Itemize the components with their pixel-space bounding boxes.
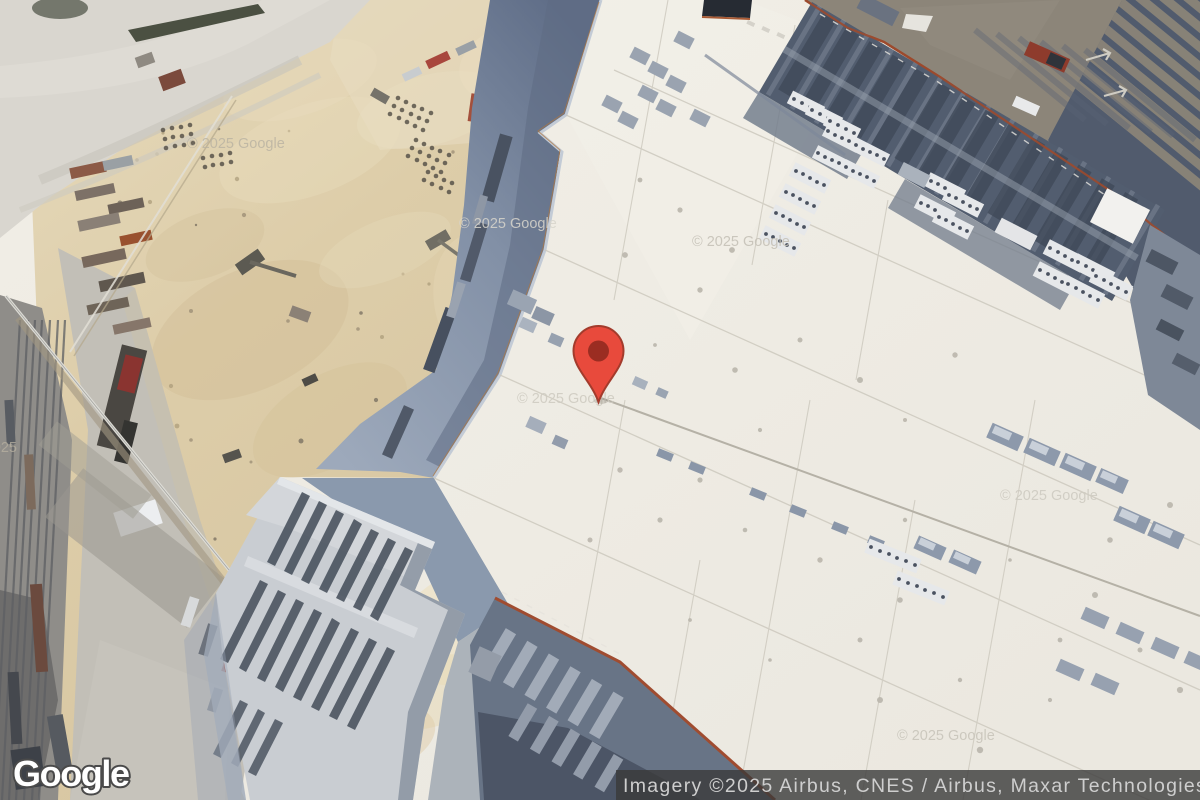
svg-text:© 2025 Google: © 2025 Google [692,234,790,250]
svg-text:© 2025 Google: © 2025 Google [1000,488,1098,504]
svg-text:© 2025 Google: © 2025 Google [187,136,285,152]
svg-text:Imagery ©2025 Airbus, CNES / A: Imagery ©2025 Airbus, CNES / Airbus, Max… [623,775,1200,797]
svg-text:© 2025 Google: © 2025 Google [897,728,995,744]
svg-text:© 2025: © 2025 [0,440,17,456]
svg-text:Google: Google [13,753,129,794]
svg-text:© 2025 Google: © 2025 Google [459,216,557,232]
